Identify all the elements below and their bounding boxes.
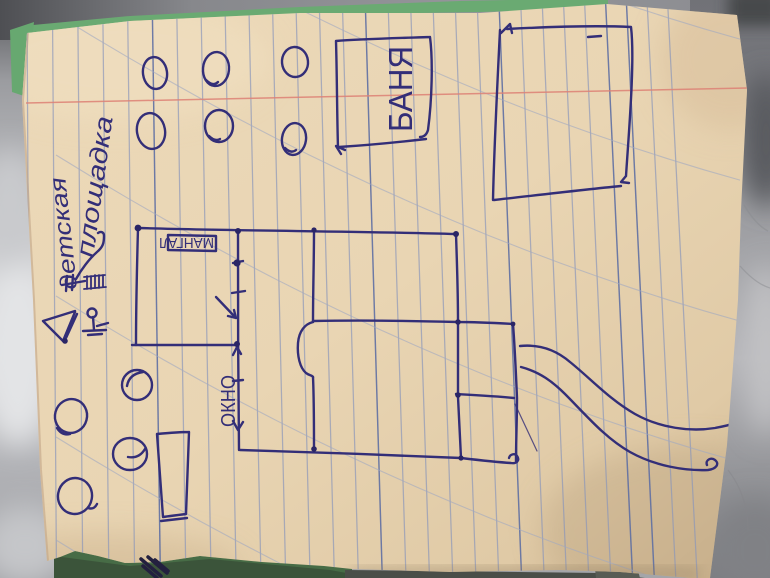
svg-text:МАНГАЛ: МАНГАЛ bbox=[159, 234, 214, 251]
svg-text:ОКНО: ОКНО bbox=[218, 375, 240, 427]
svg-text:БАНЯ: БАНЯ bbox=[382, 46, 419, 132]
